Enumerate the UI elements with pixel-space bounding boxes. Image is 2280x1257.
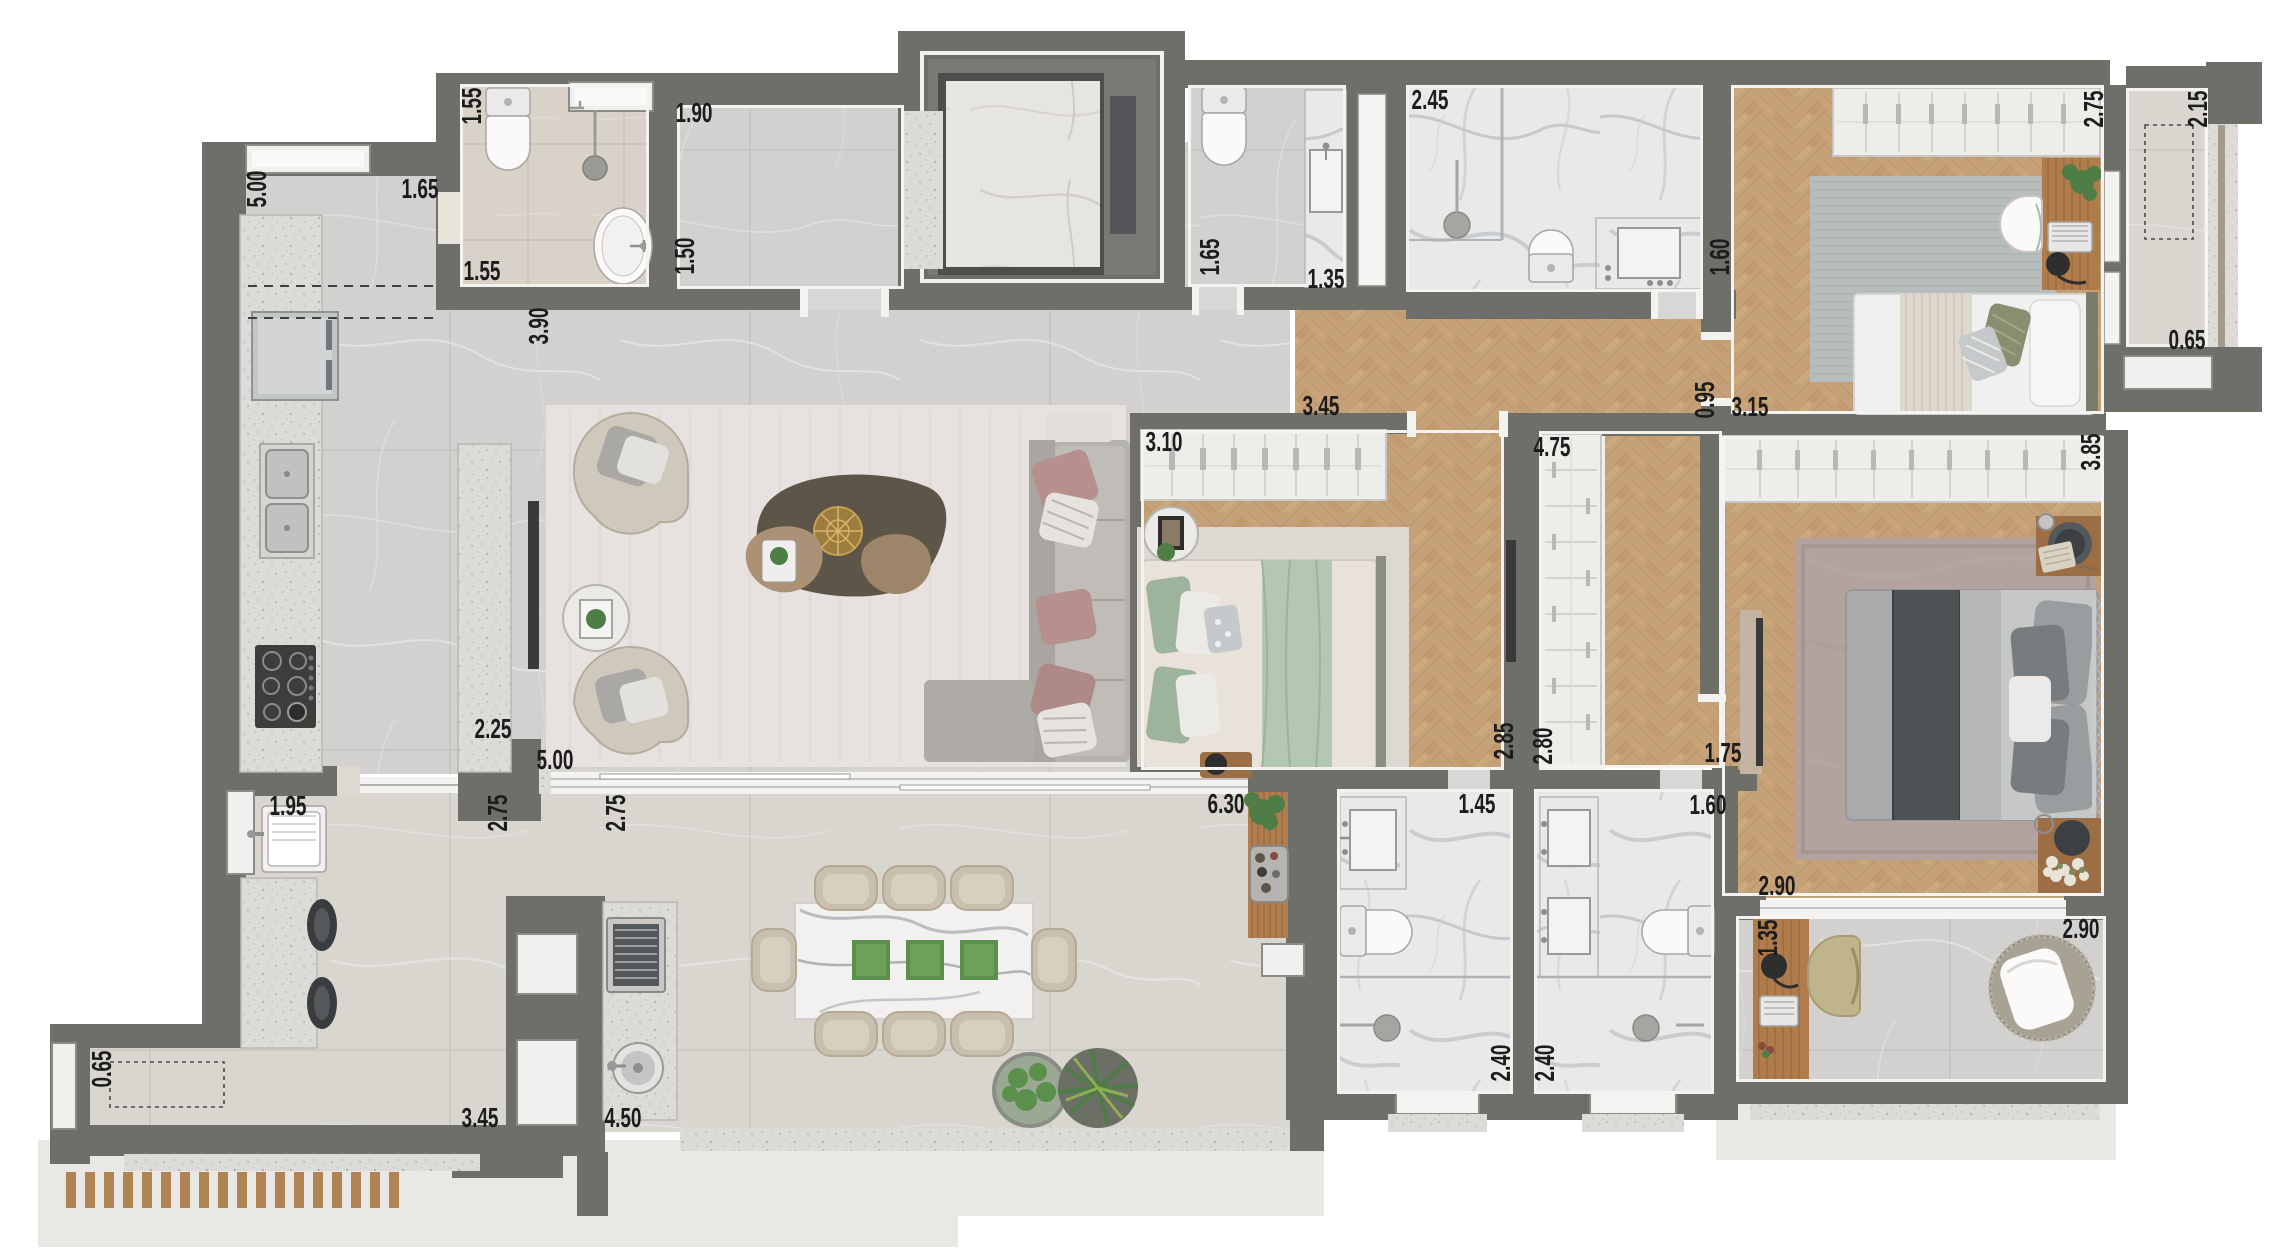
- svg-text:0.95: 0.95: [1689, 382, 1720, 419]
- svg-text:4.50: 4.50: [605, 1102, 642, 1133]
- svg-text:1.45: 1.45: [1459, 788, 1496, 819]
- svg-text:3.45: 3.45: [462, 1102, 499, 1133]
- svg-text:1.55: 1.55: [456, 88, 487, 125]
- svg-text:5.00: 5.00: [241, 171, 272, 208]
- svg-text:2.40: 2.40: [1529, 1045, 1560, 1082]
- svg-text:1.65: 1.65: [1194, 239, 1225, 276]
- svg-text:3.45: 3.45: [1303, 390, 1340, 421]
- svg-text:2.75: 2.75: [2078, 91, 2109, 128]
- svg-text:2.25: 2.25: [475, 713, 512, 744]
- svg-text:1.50: 1.50: [669, 238, 700, 275]
- svg-text:1.55: 1.55: [464, 255, 501, 286]
- svg-text:1.75: 1.75: [1705, 737, 1742, 768]
- svg-text:2.85: 2.85: [1488, 723, 1519, 760]
- svg-text:1.60: 1.60: [1704, 239, 1735, 276]
- svg-text:3.10: 3.10: [1146, 426, 1183, 457]
- svg-text:2.45: 2.45: [1412, 84, 1449, 115]
- svg-text:2.90: 2.90: [1759, 870, 1796, 901]
- svg-text:1.65: 1.65: [402, 173, 439, 204]
- svg-text:1.35: 1.35: [1752, 920, 1783, 957]
- svg-text:2.75: 2.75: [600, 795, 631, 832]
- svg-text:2.15: 2.15: [2182, 91, 2213, 128]
- svg-text:3.90: 3.90: [523, 308, 554, 345]
- svg-text:0.65: 0.65: [86, 1051, 117, 1088]
- svg-text:5.00: 5.00: [537, 744, 574, 775]
- svg-text:1.90: 1.90: [676, 97, 713, 128]
- svg-text:2.80: 2.80: [1527, 728, 1558, 765]
- svg-text:1.35: 1.35: [1308, 263, 1345, 294]
- svg-text:2.90: 2.90: [2063, 913, 2100, 944]
- svg-text:3.15: 3.15: [1732, 391, 1769, 422]
- svg-text:0.65: 0.65: [2169, 324, 2206, 355]
- svg-text:1.95: 1.95: [270, 790, 307, 821]
- svg-text:6.30: 6.30: [1208, 788, 1245, 819]
- svg-text:4.75: 4.75: [1534, 431, 1571, 462]
- svg-text:3.85: 3.85: [2075, 434, 2106, 471]
- svg-text:2.40: 2.40: [1485, 1045, 1516, 1082]
- svg-text:1.60: 1.60: [1690, 789, 1727, 820]
- svg-text:2.75: 2.75: [482, 795, 513, 832]
